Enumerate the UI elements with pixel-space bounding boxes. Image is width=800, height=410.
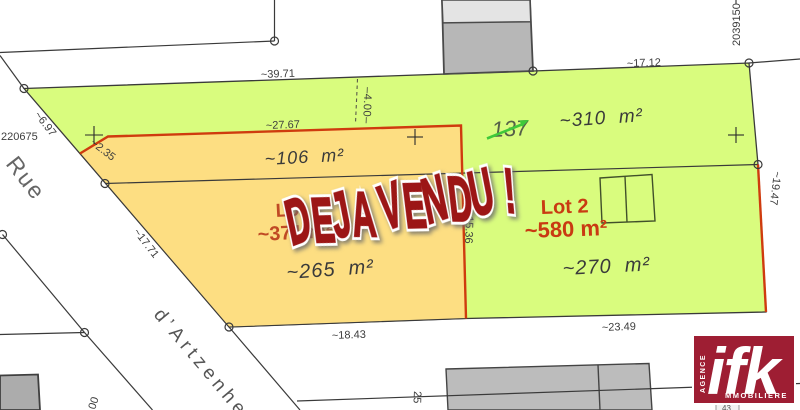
svg-text:~270 m²: ~270 m² (562, 253, 651, 280)
svg-text:~27.67: ~27.67 (266, 119, 300, 132)
svg-text:2039150: 2039150 (731, 3, 743, 46)
svg-text:25: 25 (411, 391, 423, 404)
svg-text:~580 m²: ~580 m² (524, 215, 607, 243)
svg-text:~39.71: ~39.71 (261, 68, 295, 81)
svg-text:220675: 220675 (1, 131, 38, 143)
svg-text:~19.47: ~19.47 (767, 171, 783, 206)
svg-text:–4.00–: –4.00– (360, 87, 373, 124)
svg-text:~17.12: ~17.12 (627, 57, 661, 70)
svg-text:~18.43: ~18.43 (332, 329, 366, 342)
svg-text:~106 m²: ~106 m² (264, 145, 344, 169)
svg-text:Rue: Rue (1, 151, 51, 205)
svg-text:00: 00 (86, 396, 101, 410)
svg-text:~23.49: ~23.49 (602, 321, 636, 334)
